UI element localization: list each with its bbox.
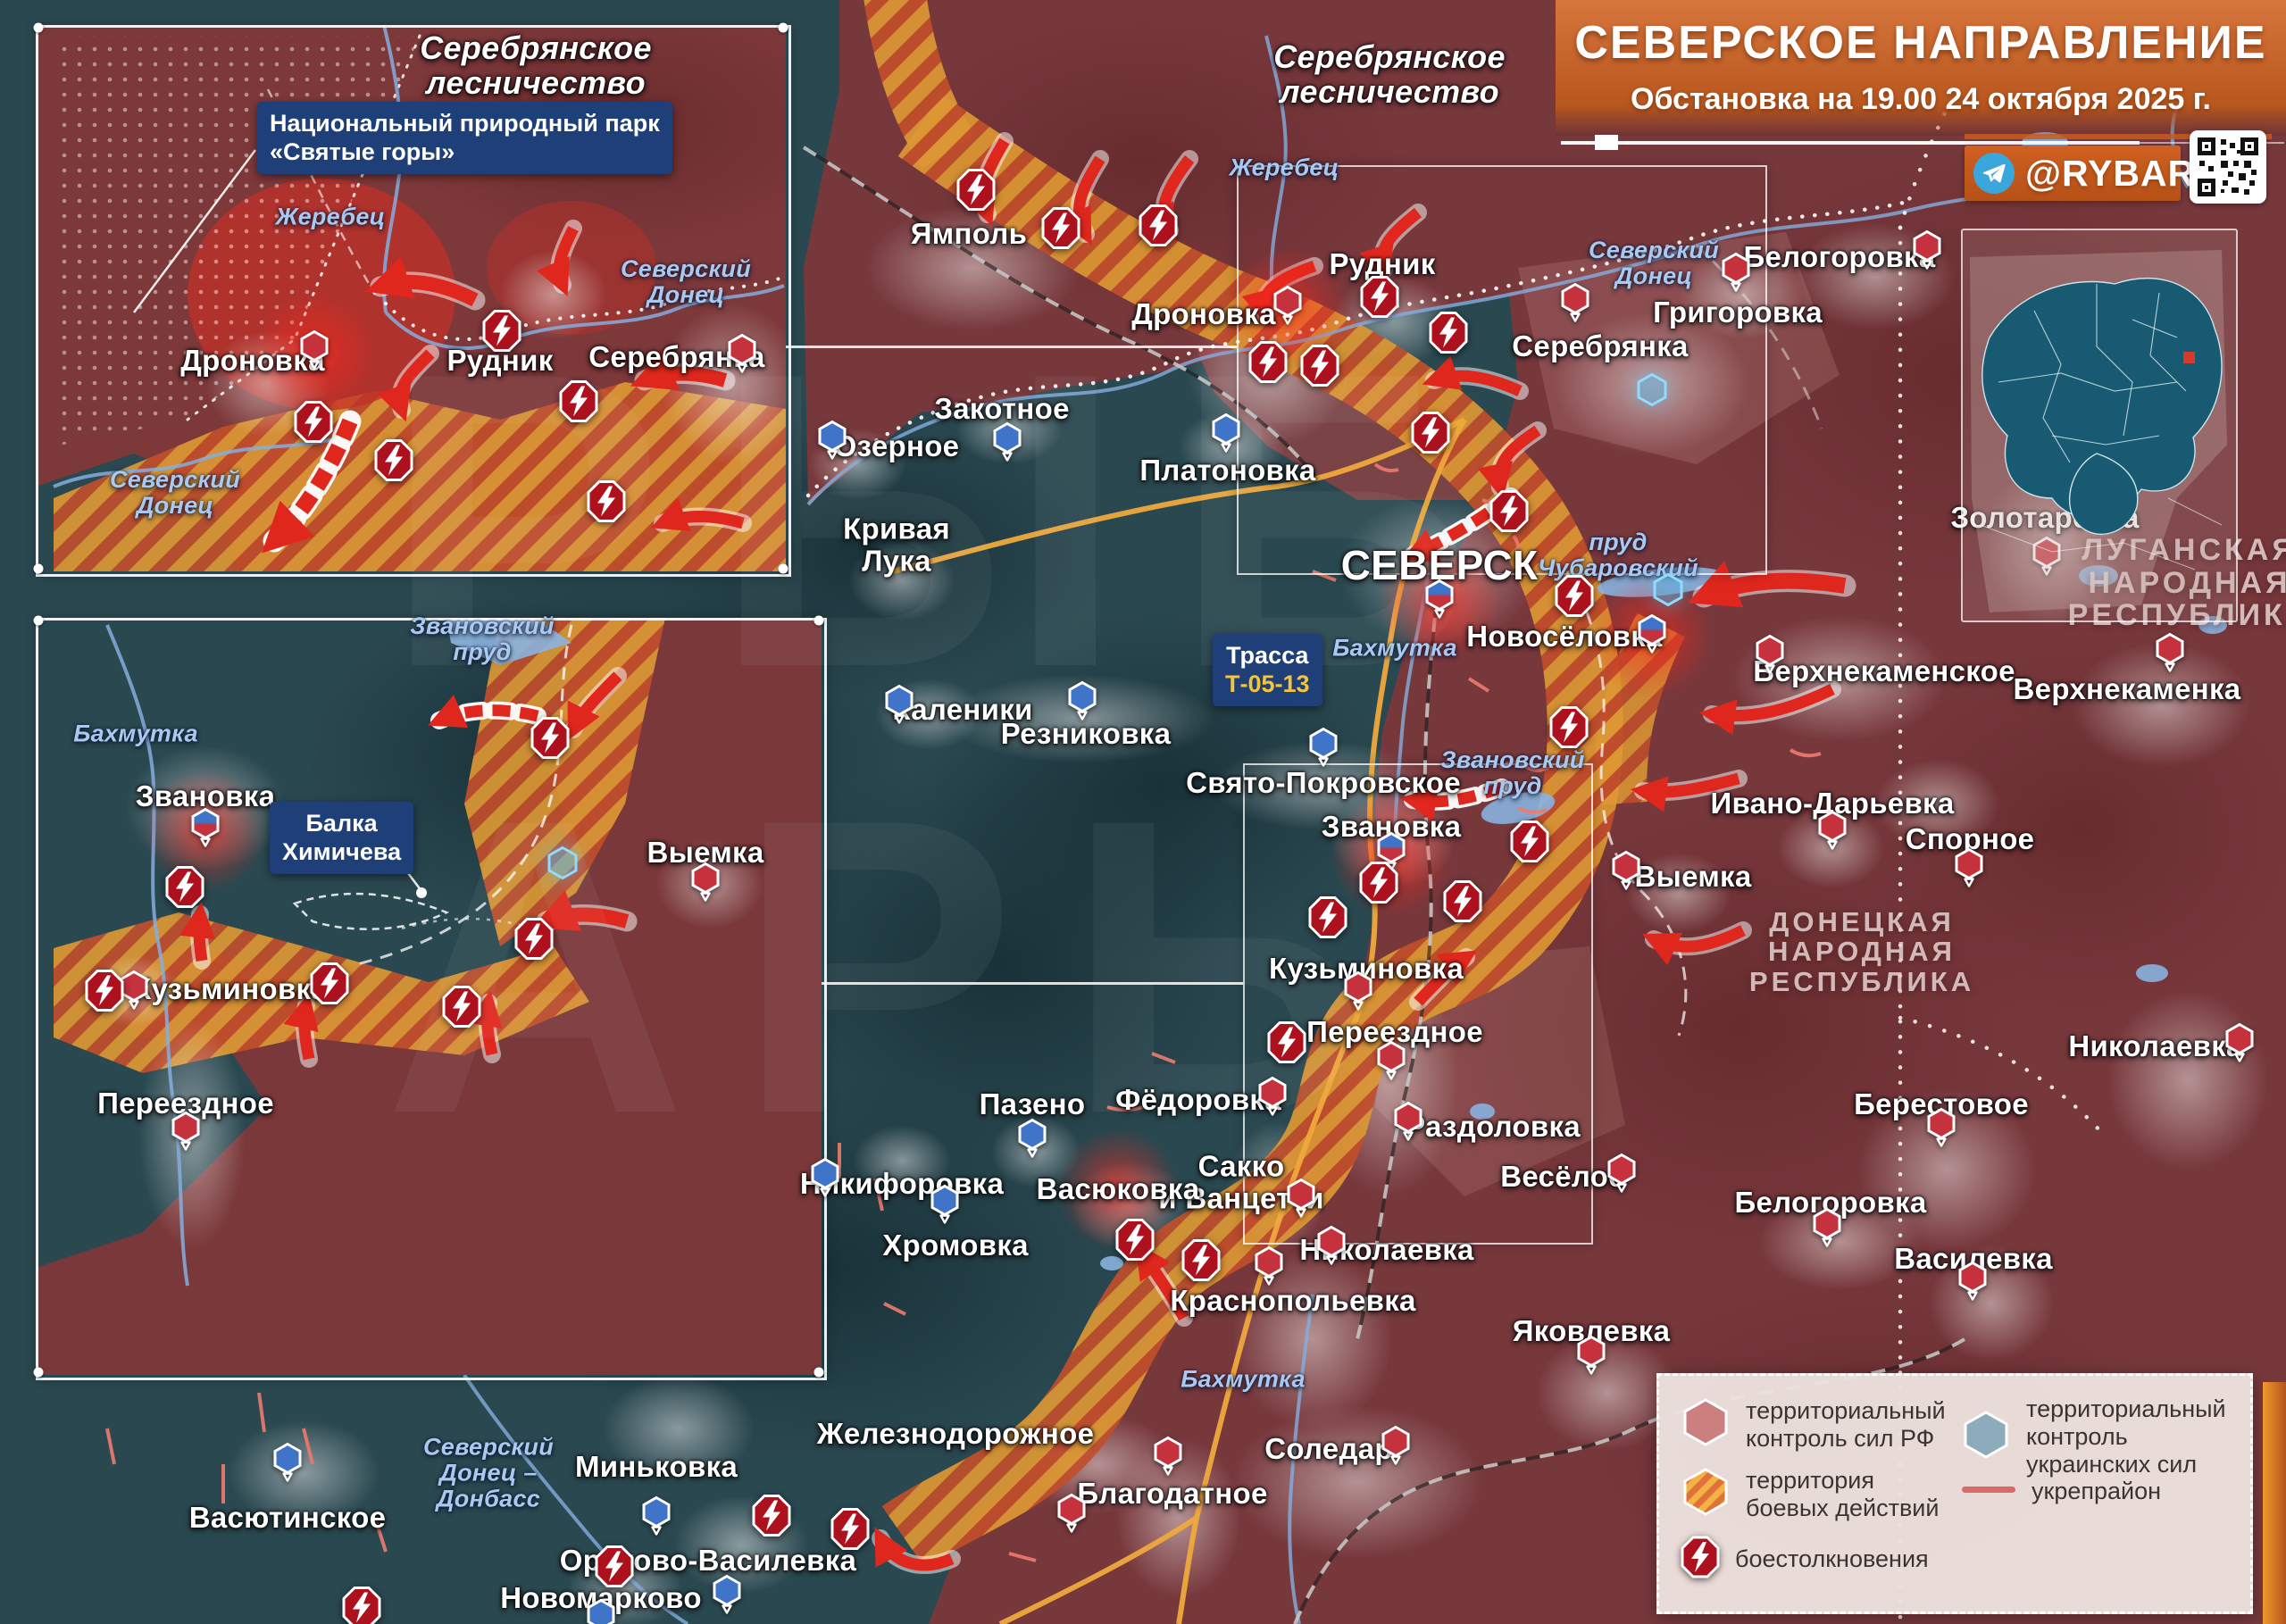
water-label: Звановскийпруд (410, 613, 554, 665)
inset1-connector-line (786, 346, 1237, 348)
town-label: Закотное (934, 393, 1069, 425)
town-label: Платоновка (1139, 454, 1315, 487)
town-marker-rf (1285, 1178, 1317, 1224)
town-label: КриваяЛука (843, 512, 950, 576)
town-marker-rf (1256, 1077, 1289, 1122)
legend-label: территория боевых действий (1746, 1467, 1939, 1522)
town-marker-rf (689, 862, 722, 908)
town-marker-rf (1253, 1246, 1285, 1292)
town-label: Васюковка (1037, 1173, 1200, 1205)
qr-pattern (2198, 137, 2258, 196)
water-label: Жеребец (276, 204, 386, 229)
clash-icon (373, 438, 414, 487)
town-label: Ямполь (911, 218, 1027, 250)
telegram-icon (1973, 153, 2015, 194)
legend-label: укрепрайон (2032, 1478, 2161, 1505)
town-marker-rf (1272, 286, 1304, 331)
town-marker-rf (1575, 1336, 1607, 1381)
town-marker-rf (1816, 811, 1848, 856)
town-marker-rf (726, 334, 758, 379)
rybar-badge: @RYBAR (1965, 146, 2181, 201)
forest-area-label: Серебрянскоелесничество (1273, 40, 1506, 110)
clash-icon (1307, 895, 1348, 945)
town-marker-rf (1375, 1041, 1407, 1087)
town-label: Озерное (834, 430, 960, 462)
clash-icon (1114, 1218, 1156, 1267)
info-box: БалкаХимичева (270, 802, 413, 874)
clash-icon (481, 309, 522, 358)
town-marker-ua (711, 1575, 743, 1620)
edge-accent-bar (2263, 1382, 2286, 1624)
clash-icon (594, 1545, 635, 1594)
water-label: СеверскийДонец (1589, 237, 1719, 289)
town-marker-ua (1307, 728, 1339, 773)
water-label: Бахмутка (1332, 635, 1457, 661)
info-box: ТрассаТ-05-13 (1213, 634, 1322, 706)
legend-icon-hex-rf (1680, 1395, 1731, 1453)
map-subtitle: Обстановка на 19.00 24 октября 2025 г. (1556, 82, 2286, 117)
clash-icon (309, 962, 350, 1011)
attack-arrow (305, 1005, 309, 1059)
clash-icon (558, 379, 599, 429)
town-marker-rf (1956, 1262, 1989, 1307)
attack-arrow (663, 517, 743, 524)
water-label: Бахмутка (1181, 1366, 1306, 1392)
attack-arrow (546, 915, 627, 922)
town-marker-rf (1720, 253, 1752, 298)
region-label: ДОНЕЦКАЯНАРОДНАЯРЕСПУБЛИКА (1749, 907, 1974, 996)
town-marker-rf (1342, 971, 1374, 1017)
clash-icon (1428, 311, 1469, 360)
town-marker-rf (1152, 1437, 1184, 1482)
town-marker-mixed (189, 808, 221, 854)
town-label: Хромовка (882, 1229, 1029, 1262)
clash-icon (955, 168, 997, 217)
town-marker-ua (883, 685, 915, 730)
town-label: Васютинское (189, 1502, 387, 1534)
town-label: Миньковка (575, 1451, 738, 1483)
water-label: СеверскийДонец (110, 467, 240, 519)
clash-icon (341, 1586, 382, 1624)
title-underline (1561, 141, 2140, 145)
town-label: Серебрянка (1512, 330, 1688, 362)
town-marker-ua (1016, 1119, 1048, 1164)
legend-item-line: укрепрайон (1960, 1478, 2161, 1505)
clash-icon (1040, 206, 1081, 255)
town-marker-ua (640, 1496, 672, 1542)
clash-icon (1509, 820, 1550, 869)
legend-icon-line (1960, 1482, 2017, 1501)
town-marker-ua (1066, 681, 1098, 727)
clash-icon (1442, 879, 1483, 929)
forest-area-label: Серебрянскоелесничество (420, 31, 652, 101)
town-marker-ua (991, 422, 1023, 468)
rybar-handle: @RYBAR (2025, 153, 2195, 195)
legend-icon-hex-hatch (1680, 1465, 1731, 1523)
clash-icon (530, 716, 571, 765)
town-label: Николаевка (2068, 1030, 2242, 1062)
clash-icon (830, 1507, 871, 1556)
town-marker-rf (1911, 230, 1943, 276)
town-marker-rf (1392, 1102, 1424, 1147)
legend-item-bolt: боестолкновения (1680, 1535, 1929, 1584)
clash-icon (1548, 705, 1589, 754)
town-marker-mixed (1423, 579, 1456, 625)
clash-icon (293, 400, 334, 449)
town-marker-rf (1055, 1494, 1088, 1539)
town-label: Соледар (1264, 1433, 1393, 1465)
water-label: Жеребец (1230, 154, 1339, 180)
clash-icon (1266, 1020, 1307, 1070)
town-marker-ua (809, 1158, 841, 1203)
town-label: Верхнекаменка (2014, 673, 2241, 705)
town-label: Григоровка (1653, 296, 1823, 329)
town-label: Кузьминовка (133, 973, 328, 1005)
town-marker-rf (1610, 851, 1642, 896)
clash-icon (1410, 411, 1451, 460)
town-marker-ua (271, 1443, 304, 1488)
attack-arrow (645, 374, 725, 381)
map-title: СЕВЕРСКОЕ НАПРАВЛЕНИЕ (1556, 16, 2286, 70)
town-label: Новосёловка (1466, 620, 1662, 653)
clash-icon (1489, 489, 1530, 538)
ua-stronghold-icon (543, 843, 582, 890)
clash-icon (1138, 204, 1179, 253)
clash-icon (84, 969, 125, 1018)
town-marker-rf (1811, 1208, 1843, 1253)
town-label: Железнодорожное (817, 1418, 1094, 1450)
town-marker-rf (2223, 1023, 2256, 1069)
ua-stronghold-icon (1632, 370, 1672, 417)
ua-stronghold-icon (1648, 570, 1688, 617)
legend-icon-hex-ua (1960, 1408, 2012, 1466)
water-label: Бахмутка (73, 720, 198, 746)
town-label: Дроновка (1131, 298, 1275, 330)
clash-icon (164, 865, 205, 914)
town-marker-rf (1925, 1108, 1957, 1153)
clash-icon (1181, 1238, 1222, 1287)
town-marker-rf (2154, 633, 2186, 679)
town-label: Раздоловка (1406, 1111, 1581, 1143)
town-label: Белогоровка (1744, 241, 1936, 273)
legend-item-hex-hatch: территория боевых действий (1680, 1465, 1939, 1523)
town-marker-mixed (1636, 614, 1668, 660)
title-underline-handle (1595, 135, 1618, 150)
clash-icon (1299, 344, 1340, 393)
town-marker-rf (1754, 635, 1786, 680)
legend-label: боестолкновения (1735, 1545, 1929, 1573)
clash-icon (1554, 574, 1595, 623)
town-label: Благодатное (1077, 1478, 1267, 1510)
town-marker-rf (1315, 1226, 1347, 1271)
title-banner: СЕВЕРСКОЕ НАПРАВЛЕНИЕ Обстановка на 19.0… (1556, 0, 2286, 136)
town-label: Краснопольевка (1170, 1285, 1415, 1317)
clash-icon (586, 479, 627, 529)
town-marker-rf (1380, 1426, 1412, 1471)
town-label: Пазено (980, 1088, 1086, 1120)
town-marker-ua (1210, 413, 1242, 459)
clash-icon (1358, 861, 1399, 910)
ukraine-minimap (1961, 229, 2238, 622)
clash-icon (513, 917, 555, 966)
town-marker-rf (1606, 1153, 1638, 1199)
town-marker-ua (816, 421, 848, 466)
town-label: Верхнекаменское (1753, 655, 2015, 687)
town-marker-rf (298, 330, 330, 376)
water-label: Звановскийпруд (1440, 747, 1584, 799)
legend-icon-bolt (1680, 1535, 1721, 1584)
attack-arrow (199, 914, 202, 961)
inset2-connector-line (822, 982, 1243, 985)
legend-item-hex-ua: территориальный контроль украинских сил (1960, 1395, 2250, 1478)
town-marker-rf (1559, 283, 1591, 329)
town-marker-rf (170, 1112, 202, 1157)
clash-icon (1359, 275, 1400, 324)
town-marker-ua (929, 1185, 961, 1230)
legend-label: территориальный контроль сил РФ (1746, 1397, 1946, 1453)
legend-item-hex-rf: территориальный контроль сил РФ (1680, 1395, 1946, 1453)
town-marker-rf (1953, 848, 1985, 894)
water-label: СеверскийДонец –Донбасс (423, 1434, 554, 1512)
water-label: СеверскийДонец (621, 256, 751, 308)
legend-label: территориальный контроль украинских сил (2026, 1395, 2250, 1478)
town-label: Выемка (1634, 861, 1751, 893)
map-legend: территориальный контроль сил РФтерритори… (1656, 1373, 2253, 1614)
info-box: Национальный природный парк«Святые горы» (257, 102, 672, 174)
clash-icon (1247, 340, 1289, 389)
town-marker-ua (585, 1599, 617, 1624)
clash-icon (441, 985, 482, 1034)
clash-icon (751, 1494, 792, 1543)
map-canvas: РЫБ АРЬ ЯмпольДроновкаРудникСеребрянкаБе… (0, 0, 2286, 1624)
qr-code (2190, 130, 2266, 204)
attack-arrow (488, 1003, 492, 1054)
